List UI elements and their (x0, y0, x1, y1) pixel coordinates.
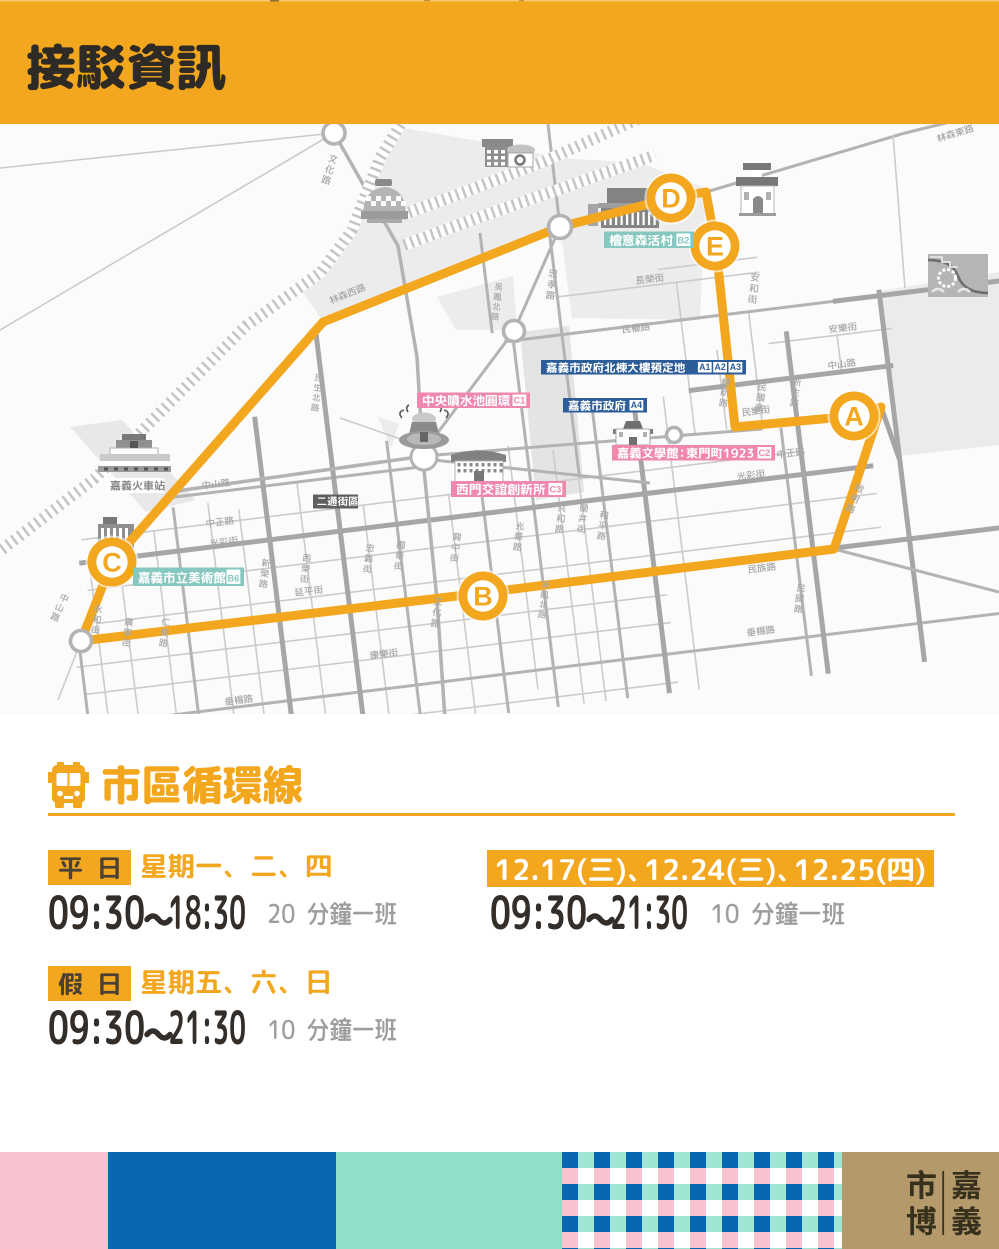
svg-text:A2: A2 (714, 362, 725, 372)
svg-text:B6: B6 (228, 573, 240, 583)
svg-text:B: B (473, 582, 493, 612)
svg-text:A: A (844, 402, 864, 432)
svg-text:C: C (102, 548, 122, 578)
svg-text:D: D (661, 184, 681, 214)
svg-text:C1: C1 (514, 395, 526, 405)
svg-text:A4: A4 (631, 400, 642, 410)
svg-text:B2: B2 (678, 235, 690, 245)
svg-text:C3: C3 (550, 484, 562, 494)
svg-text:C2: C2 (759, 448, 771, 458)
svg-text:A1: A1 (699, 362, 710, 372)
svg-text:E: E (706, 232, 724, 262)
svg-text:A3: A3 (730, 362, 741, 372)
